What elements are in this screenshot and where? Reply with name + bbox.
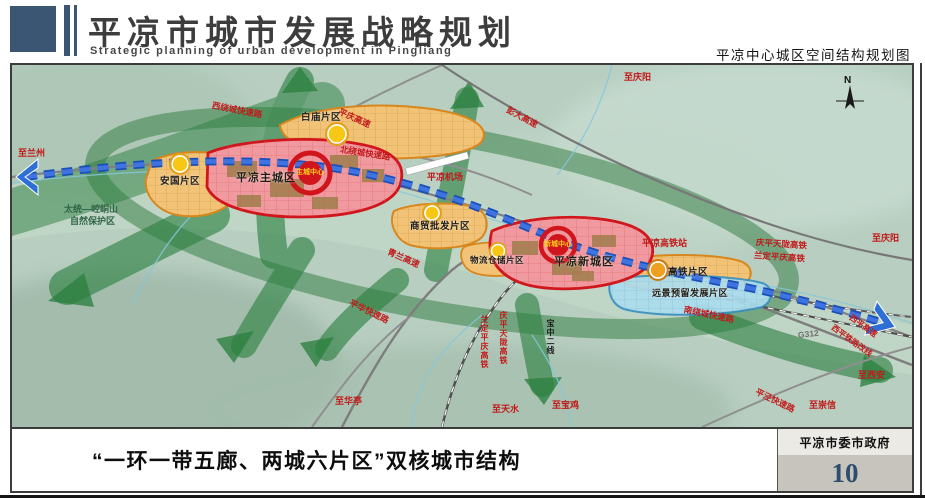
label-to-baoji: 至宝鸡 (552, 401, 579, 410)
label-ldpq-hsr-vertical: 兰定平庆高铁 (480, 315, 488, 369)
compass-north-label: N (844, 75, 851, 86)
label-main-core: 主城中心 (293, 169, 327, 176)
label-trade-district: 商贸批发片区 (410, 222, 470, 232)
label-hsr-station: 平凉高铁站 (642, 239, 687, 248)
structure-caption: “一环一带五廊、两城六片区”双核城市结构 (92, 429, 521, 491)
label-to-chongxin: 至崇信 (809, 401, 836, 410)
right-border-rule (920, 63, 922, 495)
label-new-city: 平凉新城区 (554, 257, 614, 268)
label-nature-reserve-line2: 自然保护区 (70, 217, 115, 226)
label-baozhong-rail: 宝中二线 (546, 319, 554, 355)
header-bar-thick (64, 5, 70, 56)
page-number: 10 (778, 455, 912, 491)
label-nature-reserve-line1: 太统—崆峒山 (64, 205, 118, 214)
label-logistics-district: 物流仓储片区 (470, 256, 524, 265)
planning-map: 至兰州 至庆阳 至庆阳 至西安 至崇信 至宝鸡 至天水 至华亭 平庆高速 彭大高… (10, 63, 914, 429)
credit-box: 平凉市委市政府 10 (777, 429, 912, 491)
label-new-core: 新城中心 (541, 241, 575, 248)
bottom-border-rule (0, 495, 925, 498)
label-to-qingyang-top: 至庆阳 (624, 73, 651, 82)
label-qptl-hsr-vertical: 庆平天陇高铁 (499, 311, 507, 365)
footer: “一环一带五廊、两城六片区”双核城市结构 平凉市委市政府 10 (10, 427, 914, 493)
government-credit: 平凉市委市政府 (778, 429, 912, 455)
label-reserved-district: 远景预留发展片区 (652, 289, 728, 298)
page-title-english: Strategic planning of urban development … (90, 45, 453, 57)
label-main-city: 平凉主城区 (236, 173, 296, 184)
label-anguo-district: 安国片区 (160, 177, 200, 187)
map-subtitle: 平凉中心城区空间结构规划图 (716, 44, 911, 64)
label-to-tianshui: 至天水 (492, 405, 519, 414)
label-hsr-district: 高铁片区 (668, 268, 708, 278)
label-to-xian: 至西安 (858, 371, 885, 380)
plan-sheet: 平凉市城市发展战略规划 Strategic planning of urban … (0, 0, 925, 500)
label-to-huating: 至华亭 (335, 397, 362, 406)
label-to-qingyang-right: 至庆阳 (872, 234, 899, 243)
label-g312: G312 (798, 329, 820, 340)
label-to-lanzhou: 至兰州 (18, 149, 45, 158)
header-bar-thin (74, 5, 77, 56)
label-baimiao-district: 白庙片区 (301, 113, 341, 123)
header: 平凉市城市发展战略规划 Strategic planning of urban … (0, 0, 925, 63)
header-square-mark (10, 6, 56, 52)
label-airport: 平凉机场 (427, 173, 463, 182)
